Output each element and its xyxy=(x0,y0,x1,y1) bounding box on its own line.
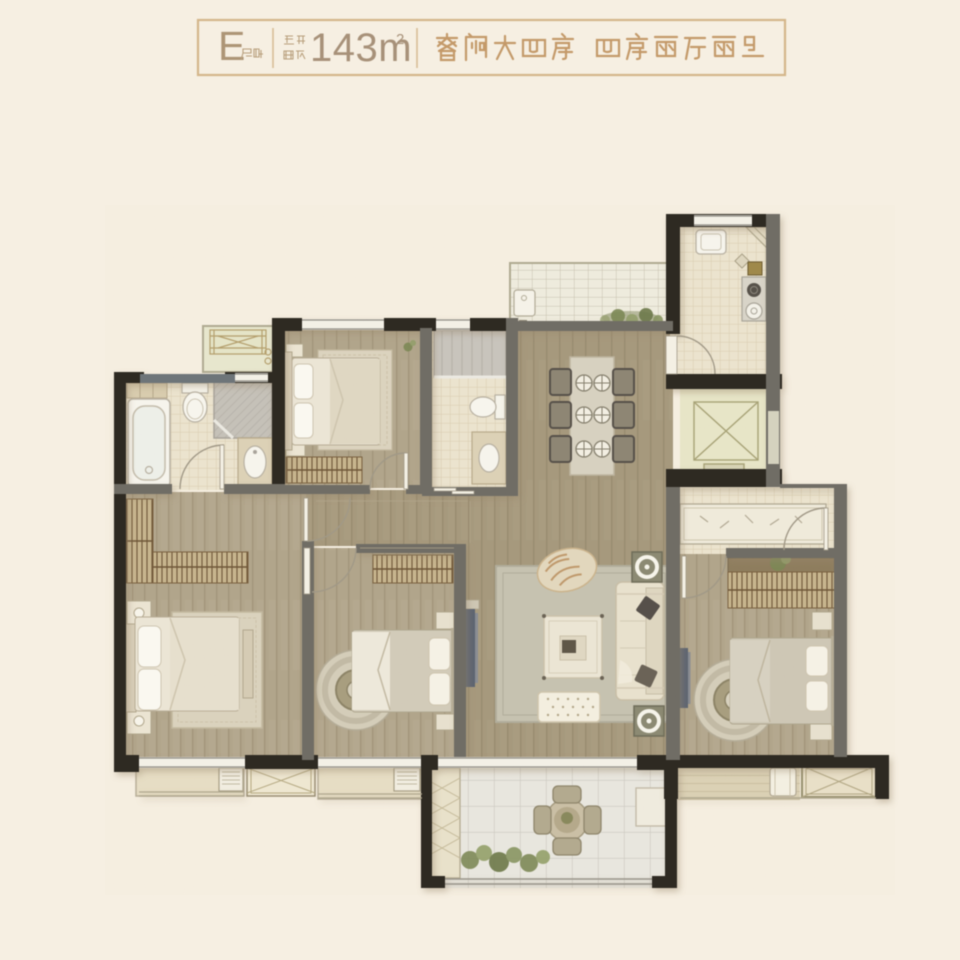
svg-text:2: 2 xyxy=(396,31,404,48)
svg-text:E: E xyxy=(218,23,245,69)
